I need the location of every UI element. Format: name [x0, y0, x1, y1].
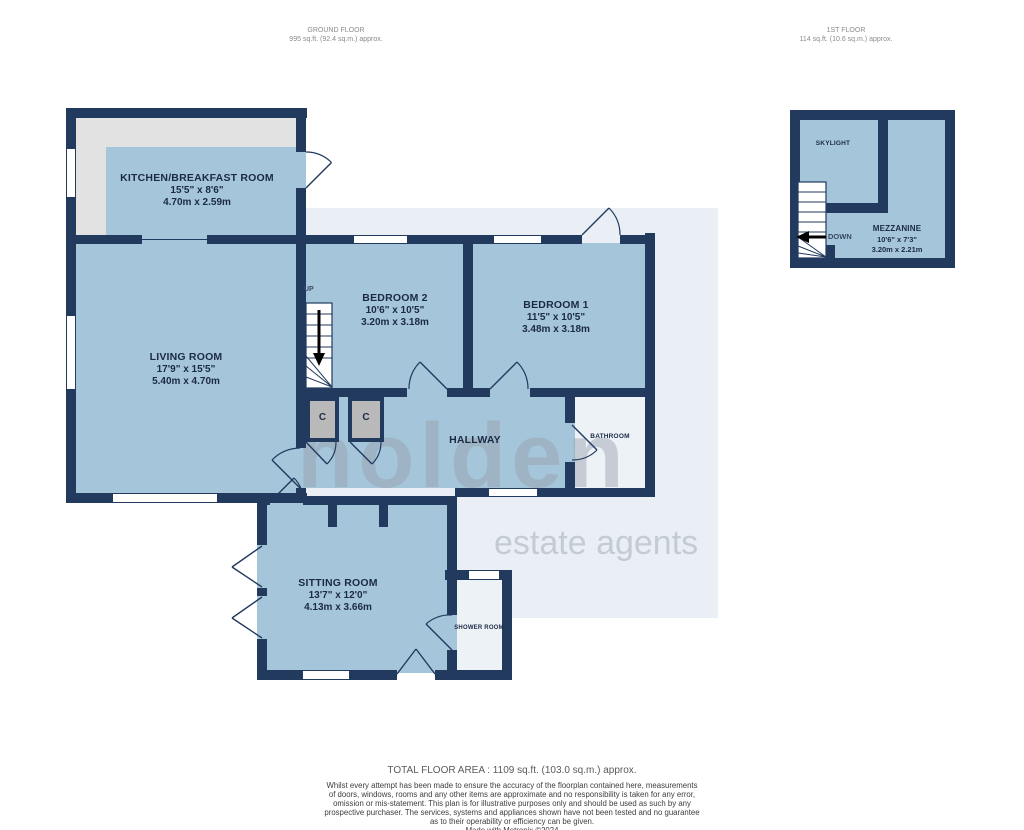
wall-segment — [379, 505, 388, 527]
cupboard-label: C — [348, 412, 384, 423]
room-name: HALLWAY — [425, 434, 525, 447]
wall-segment — [66, 493, 112, 503]
floorplan-page: GROUND FLOOR 995 sq.ft. (92.4 sq.m.) app… — [0, 0, 1024, 830]
room-dim-metric: 4.70m x 2.59m — [97, 197, 297, 210]
stairs-down-label: DOWN — [828, 232, 852, 241]
wall-segment — [296, 188, 306, 235]
room-label-skylight: SKYLIGHT — [797, 140, 869, 148]
room-label-shower: SHOWER ROOM — [444, 624, 514, 632]
wall-segment — [825, 203, 888, 213]
room-name: SHOWER ROOM — [444, 624, 514, 632]
room-dim-metric: 4.13m x 3.66m — [238, 602, 438, 615]
room-dim-imperial: 15'5" x 8'6" — [97, 185, 297, 198]
wall-segment — [645, 233, 655, 497]
window — [66, 148, 76, 198]
window — [353, 235, 408, 244]
room-name: SKYLIGHT — [797, 140, 869, 148]
wall-segment — [447, 650, 457, 680]
room-dim-metric: 3.20m x 2.21m — [822, 245, 972, 256]
room-dim-metric: 5.40m x 4.70m — [86, 376, 286, 389]
first-floor-header: 1ST FLOOR 114 sq.ft. (10.6 sq.m.) approx… — [746, 26, 946, 44]
wall-segment — [303, 496, 457, 505]
wall-segment — [447, 497, 457, 615]
window — [488, 488, 538, 497]
wall-segment — [455, 488, 488, 497]
room-dim-imperial: 17'9" x 15'5" — [86, 364, 286, 377]
wall-segment — [408, 235, 493, 244]
wall-segment — [790, 258, 955, 268]
wall-segment — [257, 670, 302, 680]
room-name: BATHROOM — [572, 433, 648, 441]
room-label-kitchen: KITCHEN/BREAKFAST ROOM 15'5" x 8'6" 4.70… — [97, 172, 297, 210]
ground-floor-area: 995 sq.ft. (92.4 sq.m.) approx. — [236, 35, 436, 44]
wall-segment — [790, 110, 955, 120]
room-dim-imperial: 13'7" x 12'0" — [238, 590, 438, 603]
window — [468, 570, 500, 580]
window — [302, 670, 350, 680]
ground-floor-title: GROUND FLOOR — [236, 26, 436, 35]
wall-segment — [565, 462, 575, 488]
wall-segment — [542, 235, 582, 244]
wall-segment — [296, 388, 407, 397]
wall-segment — [447, 388, 490, 397]
watermark-estate-agents: estate agents — [494, 524, 698, 563]
window — [66, 315, 76, 390]
kitchen-counter-area — [76, 118, 306, 147]
wall-segment — [66, 108, 307, 118]
room-name: LIVING ROOM — [86, 351, 286, 364]
room-dim-metric: 3.48m x 3.18m — [456, 324, 656, 337]
first-floor-title: 1ST FLOOR — [746, 26, 946, 35]
room-label-living: LIVING ROOM 17'9" x 15'5" 5.40m x 4.70m — [86, 351, 286, 389]
window — [493, 235, 542, 244]
stairs-up-label: UP — [304, 286, 314, 293]
wall-segment — [790, 110, 800, 268]
wall-segment — [350, 670, 397, 680]
wall-segment — [328, 505, 337, 527]
wall-segment — [66, 235, 142, 244]
room-name: SITTING ROOM — [238, 577, 438, 590]
wall-segment — [878, 110, 888, 213]
wall-segment — [257, 496, 267, 545]
cupboard-label: C — [306, 412, 339, 423]
wall-segment — [296, 108, 306, 152]
total-floor-area: TOTAL FLOOR AREA : 1109 sq.ft. (103.0 sq… — [0, 765, 1024, 776]
window — [112, 493, 218, 503]
room-name: KITCHEN/BREAKFAST ROOM — [97, 172, 297, 185]
wall-segment — [445, 570, 468, 580]
room-label-sitting: SITTING ROOM 13'7" x 12'0" 4.13m x 3.66m — [238, 577, 438, 615]
room-label-bathroom: BATHROOM — [572, 433, 648, 441]
room-dim-imperial: 11'5" x 10'5" — [456, 312, 656, 325]
wall-segment — [207, 235, 353, 244]
room-label-bedroom1: BEDROOM 1 11'5" x 10'5" 3.48m x 3.18m — [456, 299, 656, 337]
room-name: BEDROOM 1 — [456, 299, 656, 312]
wall-segment — [538, 488, 655, 497]
door-arc — [306, 152, 332, 188]
ground-floor-header: GROUND FLOOR 995 sq.ft. (92.4 sq.m.) app… — [236, 26, 436, 44]
room-label-hallway: HALLWAY — [425, 434, 525, 447]
wall-segment — [296, 243, 306, 448]
wall-segment — [530, 388, 655, 397]
first-floor-area: 114 sq.ft. (10.6 sq.m.) approx. — [746, 35, 946, 44]
wall-segment — [565, 393, 575, 423]
